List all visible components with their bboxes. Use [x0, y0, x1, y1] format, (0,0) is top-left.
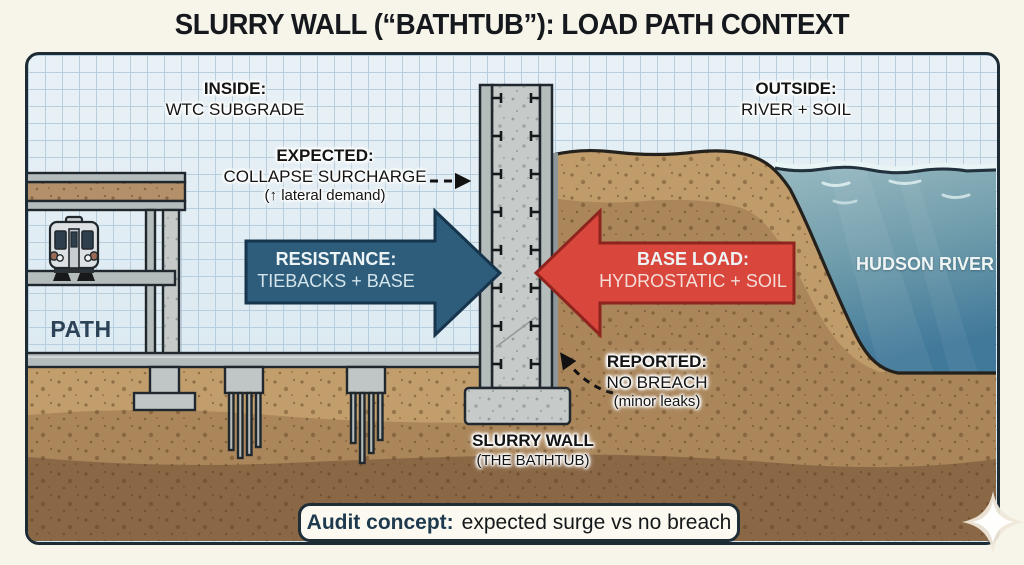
audit-lead: Audit concept: [307, 511, 454, 535]
base-load-sub: HYDROSTATIC + SOIL [599, 271, 787, 293]
diagram-title: SLURRY WALL (“BATHTUB”): LOAD PATH CONTE… [26, 9, 999, 42]
path-train-icon [50, 217, 98, 281]
inside-label: INSIDE: WTC SUBGRADE [166, 79, 305, 120]
path-label: PATH [50, 315, 111, 343]
outside-label: OUTSIDE: RIVER + SOIL [741, 79, 851, 120]
sparkle-icon [960, 489, 1024, 555]
base-load-heading: BASE LOAD: [599, 249, 787, 271]
slurry-wall-label: SLURRY WALL (THE BATHTUB) [472, 431, 594, 470]
resistance-sub: TIEBACKS + BASE [257, 271, 415, 293]
inside-sub: WTC SUBGRADE [166, 100, 305, 121]
hudson-river-label: HUDSON RIVER [856, 254, 994, 276]
waterline [775, 163, 996, 173]
outside-heading: OUTSIDE: [741, 79, 851, 100]
reported-label: REPORTED: NO BREACH (minor leaks) [606, 352, 707, 412]
expected-heading: EXPECTED: [223, 146, 426, 167]
slurry-wall-line1: SLURRY WALL [472, 431, 594, 452]
resistance-label: RESISTANCE: TIEBACKS + BASE [257, 249, 415, 293]
reported-line2: (minor leaks) [606, 393, 707, 411]
base-load-label: BASE LOAD: HYDROSTATIC + SOIL [599, 249, 787, 293]
expected-label: EXPECTED: COLLAPSE SURCHARGE (↑ lateral … [223, 146, 426, 206]
expected-line2: (↑ lateral demand) [223, 187, 426, 205]
audit-concept-banner: Audit concept: expected surge vs no brea… [298, 503, 740, 542]
audit-rest: expected surge vs no breach [462, 511, 732, 535]
outside-sub: RIVER + SOIL [741, 100, 851, 121]
diagram-canvas: SLURRY WALL (“BATHTUB”): LOAD PATH CONTE… [0, 0, 1024, 565]
resistance-heading: RESISTANCE: [257, 249, 415, 271]
diagram-frame: INSIDE: WTC SUBGRADE OUTSIDE: RIVER + SO… [25, 52, 1000, 545]
slurry-wall-line2: (THE BATHTUB) [472, 452, 594, 470]
reported-line1: NO BREACH [606, 373, 707, 394]
expected-line1: COLLAPSE SURCHARGE [223, 167, 426, 188]
inside-heading: INSIDE: [166, 79, 305, 100]
reported-heading: REPORTED: [606, 352, 707, 373]
